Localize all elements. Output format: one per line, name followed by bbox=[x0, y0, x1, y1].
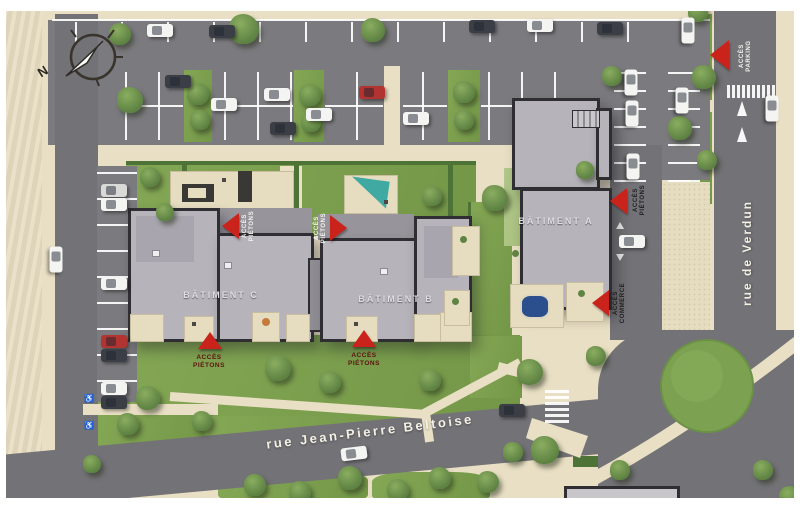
car bbox=[359, 86, 385, 99]
access-parking-label: ACCÈS PARKING bbox=[739, 26, 753, 86]
building-b-label: BÂTIMENT B bbox=[320, 294, 472, 304]
access-line: COMMERCE bbox=[620, 275, 627, 331]
tree bbox=[117, 413, 139, 435]
tree bbox=[429, 467, 451, 489]
access-line: ACCÈS bbox=[179, 354, 239, 362]
tree bbox=[668, 116, 692, 140]
tree bbox=[136, 386, 160, 410]
access-line: ACCÈS bbox=[334, 352, 394, 360]
street-verdun-label: rue de Verdun bbox=[740, 178, 754, 328]
tree bbox=[190, 110, 210, 130]
tree bbox=[503, 442, 523, 462]
tree bbox=[482, 185, 508, 211]
car bbox=[165, 75, 191, 88]
access-triangle-icon bbox=[710, 40, 729, 70]
site-plan-canvas: ♿ ♿ ACCÈS PIÉ bbox=[0, 0, 800, 505]
tree bbox=[156, 203, 174, 221]
car bbox=[270, 122, 296, 135]
tree bbox=[610, 460, 630, 480]
access-line: PIÉTONS bbox=[249, 198, 256, 254]
car bbox=[101, 184, 127, 197]
car bbox=[340, 445, 367, 461]
tree bbox=[338, 466, 362, 490]
access-triangle-icon bbox=[592, 290, 609, 316]
access-pietons-s-label: ACCÈS PIÉTONS bbox=[334, 352, 394, 367]
car bbox=[264, 88, 290, 101]
access-line: PIÉTONS bbox=[334, 360, 394, 368]
access-pietons-nw-label: ACCÈS PIÉTONS bbox=[242, 198, 256, 254]
tree bbox=[265, 355, 291, 381]
tree bbox=[779, 486, 800, 505]
car bbox=[147, 24, 173, 37]
car bbox=[101, 198, 127, 211]
access-pietons-ne-label: ACCÈS PIÉTONS bbox=[314, 200, 328, 256]
car bbox=[101, 382, 127, 395]
car bbox=[211, 98, 237, 111]
tree bbox=[586, 346, 606, 366]
access-triangle-icon bbox=[610, 188, 627, 214]
car bbox=[626, 100, 639, 126]
tree bbox=[602, 66, 622, 86]
car bbox=[597, 22, 623, 35]
access-line: PARKING bbox=[746, 26, 753, 86]
tree bbox=[192, 411, 212, 431]
tree bbox=[244, 474, 266, 496]
access-line: ACCÈS bbox=[633, 172, 640, 228]
tree bbox=[477, 471, 499, 493]
tree bbox=[697, 150, 717, 170]
car bbox=[403, 112, 429, 125]
tree bbox=[289, 481, 311, 503]
tree bbox=[576, 161, 594, 179]
car bbox=[101, 277, 127, 290]
access-line: PIÉTONS bbox=[640, 172, 647, 228]
car bbox=[101, 396, 127, 409]
tree bbox=[531, 436, 559, 464]
tree bbox=[753, 460, 773, 480]
tree bbox=[319, 371, 341, 393]
access-pietons-sw-label: ACCÈS PIÉTONS bbox=[179, 354, 239, 369]
tree bbox=[454, 110, 474, 130]
tree bbox=[419, 369, 441, 391]
car bbox=[766, 95, 779, 121]
tree bbox=[361, 18, 385, 42]
car bbox=[209, 25, 235, 38]
access-pietons-e-label: ACCÈS PIÉTONS bbox=[633, 172, 647, 228]
car bbox=[50, 246, 63, 272]
access-line: PIÉTONS bbox=[179, 362, 239, 370]
access-triangle-icon bbox=[352, 330, 376, 347]
tree bbox=[387, 479, 409, 501]
access-line: ACCÈS bbox=[739, 26, 746, 86]
car bbox=[469, 20, 495, 33]
tree bbox=[299, 84, 321, 106]
car bbox=[682, 17, 695, 43]
access-triangle-icon bbox=[330, 215, 347, 241]
access-commerce-label: ACCÈS COMMERCE bbox=[613, 275, 627, 331]
building-a-label: BÂTIMENT A bbox=[496, 216, 616, 226]
access-line: ACCÈS bbox=[242, 198, 249, 254]
building-c-label: BÂTIMENT C bbox=[146, 290, 296, 300]
car bbox=[625, 69, 638, 95]
car bbox=[619, 235, 645, 248]
tree bbox=[83, 455, 101, 473]
access-line: ACCÈS bbox=[314, 200, 321, 256]
tree bbox=[140, 167, 160, 187]
car bbox=[306, 108, 332, 121]
tree bbox=[453, 81, 475, 103]
tree bbox=[517, 359, 543, 385]
tree bbox=[422, 186, 442, 206]
access-triangle-icon bbox=[222, 213, 239, 239]
car bbox=[676, 87, 689, 113]
access-triangle-icon bbox=[198, 332, 222, 349]
access-line: ACCÈS bbox=[613, 275, 620, 331]
car bbox=[101, 335, 127, 348]
car bbox=[101, 349, 127, 362]
site-plan: ♿ ♿ ACCÈS PIÉ bbox=[0, 0, 800, 505]
car bbox=[527, 19, 553, 32]
compass-icon bbox=[56, 24, 126, 94]
access-line: PIÉTONS bbox=[321, 200, 328, 256]
